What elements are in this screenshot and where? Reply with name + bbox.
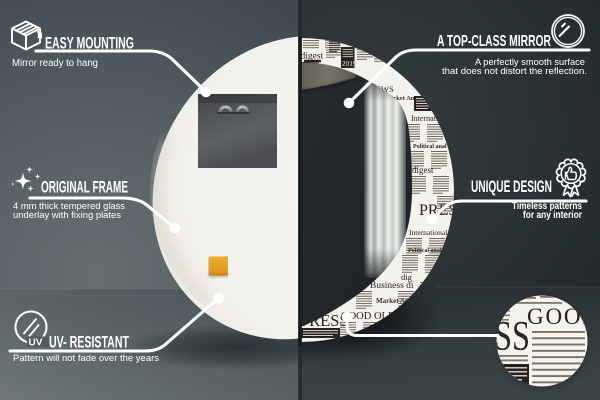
svg-text:for any interior: for any interior: [523, 210, 582, 221]
svg-text:EASY MOUNTING: EASY MOUNTING: [45, 34, 134, 53]
svg-text:Political anal: Political anal: [413, 144, 447, 150]
svg-text:Mirror ready to hang: Mirror ready to hang: [12, 58, 98, 69]
svg-text:2019: 2019: [342, 59, 357, 68]
svg-text:Pattern will not fade over the: Pattern will not fade over the years: [13, 353, 159, 364]
svg-text:ORIGINAL FRAME: ORIGINAL FRAME: [41, 178, 128, 197]
svg-text:that does not distort the refl: that does not distort the reflection.: [442, 66, 587, 77]
svg-text:UV- RESISTANT: UV- RESISTANT: [49, 333, 129, 352]
svg-text:Political anal: Political anal: [408, 248, 442, 254]
svg-text:A TOP-CLASS MIRROR: A TOP-CLASS MIRROR: [437, 33, 551, 50]
svg-text:UV: UV: [29, 338, 43, 349]
svg-text:underlay with fixing plates: underlay with fixing plates: [13, 210, 121, 221]
svg-text:UNIQUE DESIGN: UNIQUE DESIGN: [471, 177, 552, 196]
svg-text:digest: digest: [412, 165, 434, 175]
svg-text:International: International: [409, 228, 447, 237]
svg-text:Business di: Business di: [370, 281, 414, 291]
